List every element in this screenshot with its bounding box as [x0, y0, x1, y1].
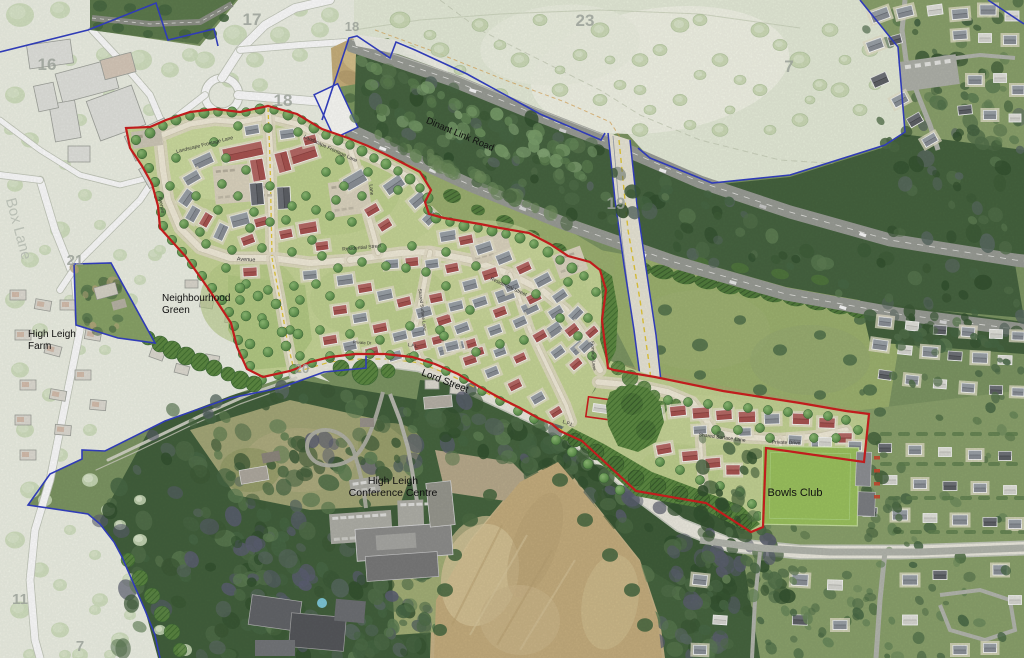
svg-text:7: 7	[784, 57, 793, 76]
svg-text:Bowls Club: Bowls Club	[767, 487, 822, 499]
svg-text:High Leigh: High Leigh	[368, 475, 418, 487]
svg-text:21: 21	[67, 252, 84, 269]
svg-text:High Leigh: High Leigh	[28, 329, 76, 340]
svg-text:Private Dr: Private Dr	[353, 340, 372, 346]
svg-text:Green: Green	[162, 305, 190, 316]
svg-text:20: 20	[295, 361, 309, 376]
svg-text:18: 18	[274, 91, 293, 110]
svg-text:Private Drive: Private Drive	[772, 440, 801, 447]
svg-text:Neighbourhood: Neighbourhood	[162, 293, 230, 304]
svg-text:Conference Centre: Conference Centre	[349, 487, 438, 499]
svg-text:16: 16	[38, 55, 57, 74]
svg-text:Lane: Lane	[368, 184, 375, 196]
svg-text:7: 7	[76, 638, 84, 655]
svg-text:Farm: Farm	[28, 341, 51, 352]
svg-text:18: 18	[345, 19, 359, 34]
svg-text:17: 17	[243, 10, 262, 29]
svg-text:11: 11	[12, 591, 28, 608]
svg-text:Avenue: Avenue	[237, 257, 256, 264]
svg-text:23: 23	[576, 11, 595, 30]
svg-text:19: 19	[607, 194, 626, 213]
